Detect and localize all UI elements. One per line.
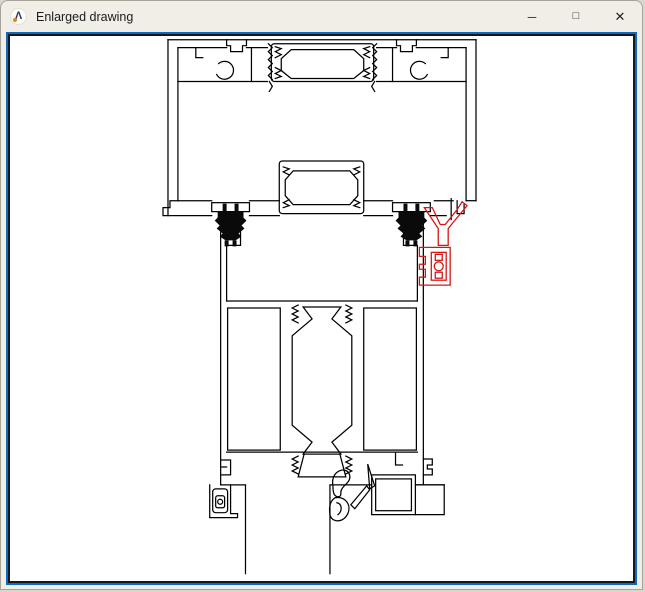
close-icon[interactable]: ✕	[598, 1, 642, 32]
window-title: Enlarged drawing	[36, 10, 133, 24]
sash-profile	[210, 212, 444, 521]
drawing-viewport-frame	[6, 32, 637, 585]
titlebar[interactable]: Λ Enlarged drawing ─ □ ✕	[1, 1, 642, 32]
glass-unit-edges	[245, 485, 329, 574]
window-controls: ─ □ ✕	[510, 1, 642, 32]
highlighted-gasket-part	[419, 202, 467, 285]
clip-in-gaskets	[215, 204, 428, 247]
maximize-icon[interactable]: □	[554, 1, 598, 32]
drawing-canvas[interactable]	[8, 34, 635, 583]
head-frame-profile	[163, 40, 476, 220]
dialog-window: Λ Enlarged drawing ─ □ ✕	[0, 0, 643, 590]
minimize-icon[interactable]: ─	[510, 1, 554, 32]
cad-cross-section	[10, 36, 633, 581]
app-logo-icon: Λ	[10, 8, 27, 25]
